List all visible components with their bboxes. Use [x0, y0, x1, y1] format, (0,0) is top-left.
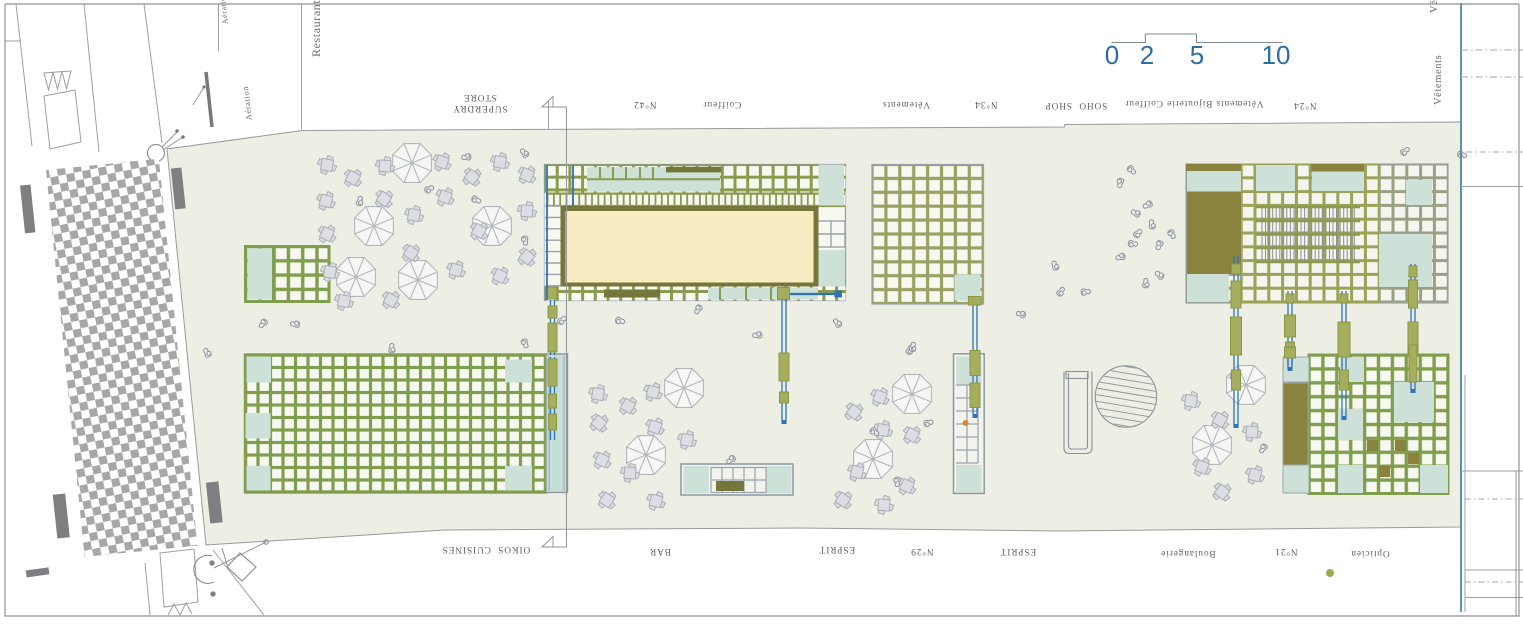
svg-text:2: 2 — [1140, 40, 1154, 70]
svg-text:STORE: STORE — [463, 92, 497, 102]
svg-text:Coiffeur: Coiffeur — [703, 99, 742, 110]
svg-text:BAR: BAR — [649, 546, 671, 556]
svg-text:SUPERDRY: SUPERDRY — [452, 103, 507, 113]
svg-text:ESPRIT: ESPRIT — [819, 544, 855, 554]
svg-text:SOHO SHOP: SOHO SHOP — [1045, 100, 1108, 110]
svg-text:Vêtements: Vêtements — [1433, 55, 1444, 105]
svg-text:Vêtements: Vêtements — [1429, 0, 1440, 13]
svg-text:Opticien: Opticien — [1350, 548, 1389, 558]
svg-text:Vêtements Bijouterie Coiffeur: Vêtements Bijouterie Coiffeur — [1124, 98, 1263, 109]
svg-text:5: 5 — [1190, 40, 1204, 70]
svg-text:0: 0 — [1105, 40, 1119, 70]
svg-text:Restaurant: Restaurant — [309, 0, 323, 57]
svg-text:N°42: N°42 — [633, 99, 656, 110]
svg-text:N°24: N°24 — [1293, 100, 1316, 111]
svg-text:ESPRIT: ESPRIT — [1000, 546, 1036, 556]
svg-text:N°29: N°29 — [910, 546, 933, 557]
svg-text:N°34: N°34 — [974, 99, 997, 110]
svg-text:Vêtements: Vêtements — [882, 99, 930, 109]
svg-text:10: 10 — [1262, 40, 1291, 70]
svg-text:Boulangerie: Boulangerie — [1160, 548, 1215, 558]
svg-text:OIKOS CUISINES: OIKOS CUISINES — [442, 544, 530, 554]
svg-text:N°21: N°21 — [1274, 546, 1297, 557]
